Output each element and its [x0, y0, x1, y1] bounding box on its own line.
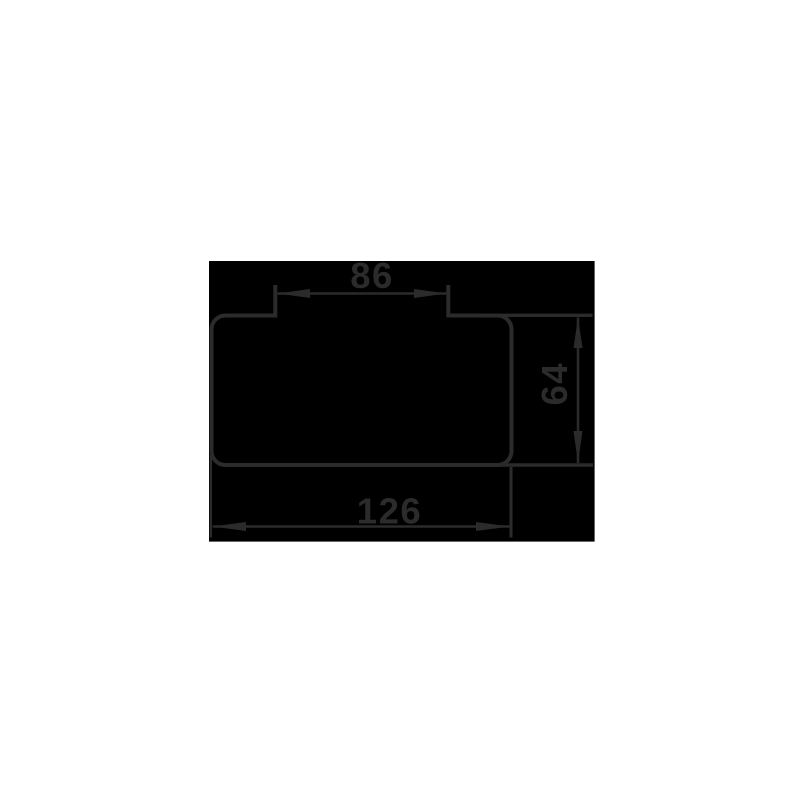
- svg-text:64: 64: [534, 362, 575, 406]
- svg-text:126: 126: [357, 491, 422, 532]
- svg-text:86: 86: [350, 255, 394, 296]
